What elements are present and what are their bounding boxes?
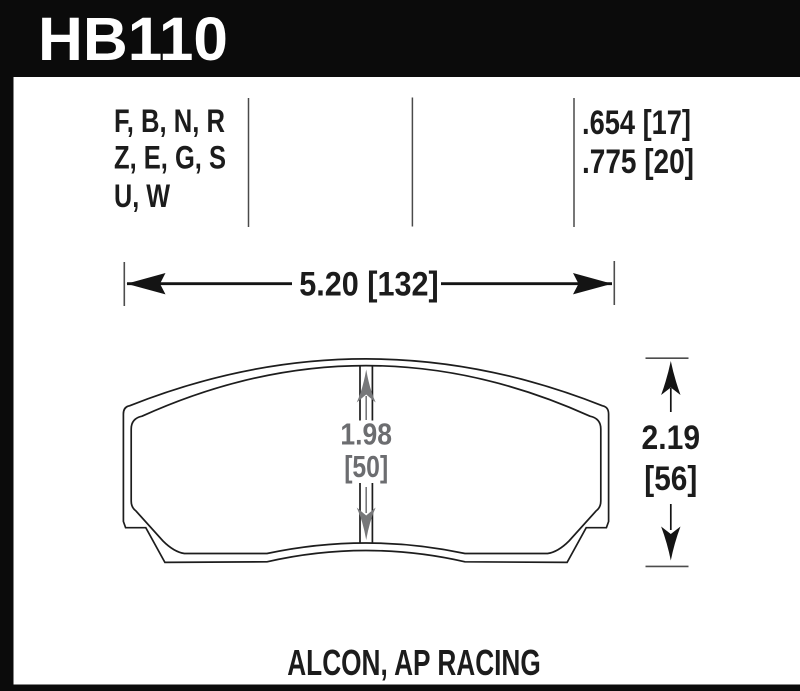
svg-text:Z, E, G, S: Z, E, G, S (114, 140, 226, 176)
svg-text:1.98: 1.98 (340, 418, 392, 452)
svg-text:F, B, N, R: F, B, N, R (114, 103, 225, 139)
svg-text:.775 [20]: .775 [20] (582, 143, 694, 181)
svg-text:[56]: [56] (644, 460, 697, 498)
svg-text:2.19: 2.19 (642, 419, 701, 457)
svg-text:.654 [17]: .654 [17] (582, 104, 691, 142)
svg-text:[50]: [50] (344, 450, 388, 484)
svg-text:U, W: U, W (114, 178, 171, 214)
svg-text:HB110: HB110 (38, 5, 228, 73)
svg-text:5.20 [132]: 5.20 [132] (299, 266, 439, 304)
svg-text:ALCON, AP RACING: ALCON, AP RACING (287, 642, 541, 683)
